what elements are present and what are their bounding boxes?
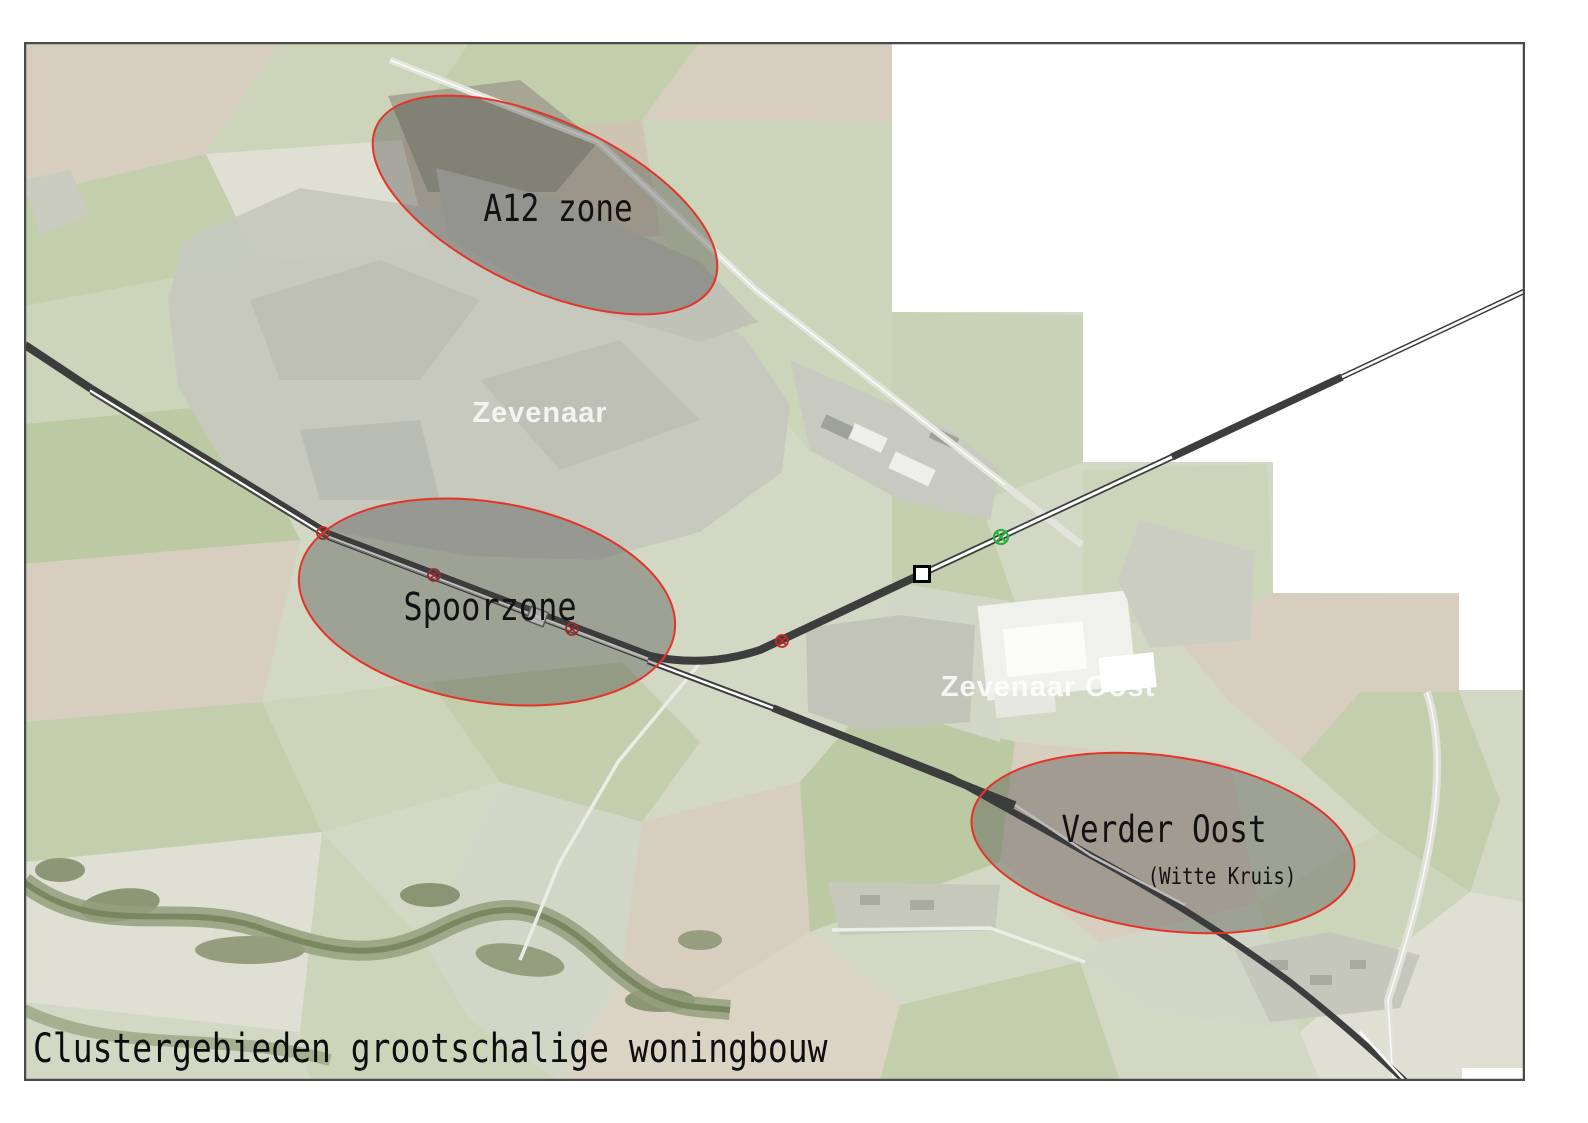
place-label-zevenaar-oost: Zevenaar Oost: [941, 671, 1155, 703]
map-caption: Clustergebieden grootschalige woningbouw: [33, 1025, 828, 1072]
map-document: Zevenaar Didam Zevenaar Oost A12 zone Sp…: [0, 0, 1588, 1123]
map-canvas: Zevenaar Didam Zevenaar Oost A12 zone Sp…: [24, 42, 1525, 1081]
place-label-didam: Didam: [1253, 310, 1347, 342]
zone-label-verder-oost: Verder Oost: [1061, 808, 1266, 851]
zone-label-spoorzone: Spoorzone: [403, 585, 576, 630]
place-label-zevenaar: Zevenaar: [472, 397, 607, 429]
station-icon: [915, 567, 930, 582]
zone-sublabel-witte-kruis: (Witte Kruis): [1148, 863, 1297, 889]
map-caption-text: Clustergebieden grootschalige woningbouw: [33, 1025, 828, 1072]
zone-label-a12: A12 zone: [483, 187, 632, 230]
